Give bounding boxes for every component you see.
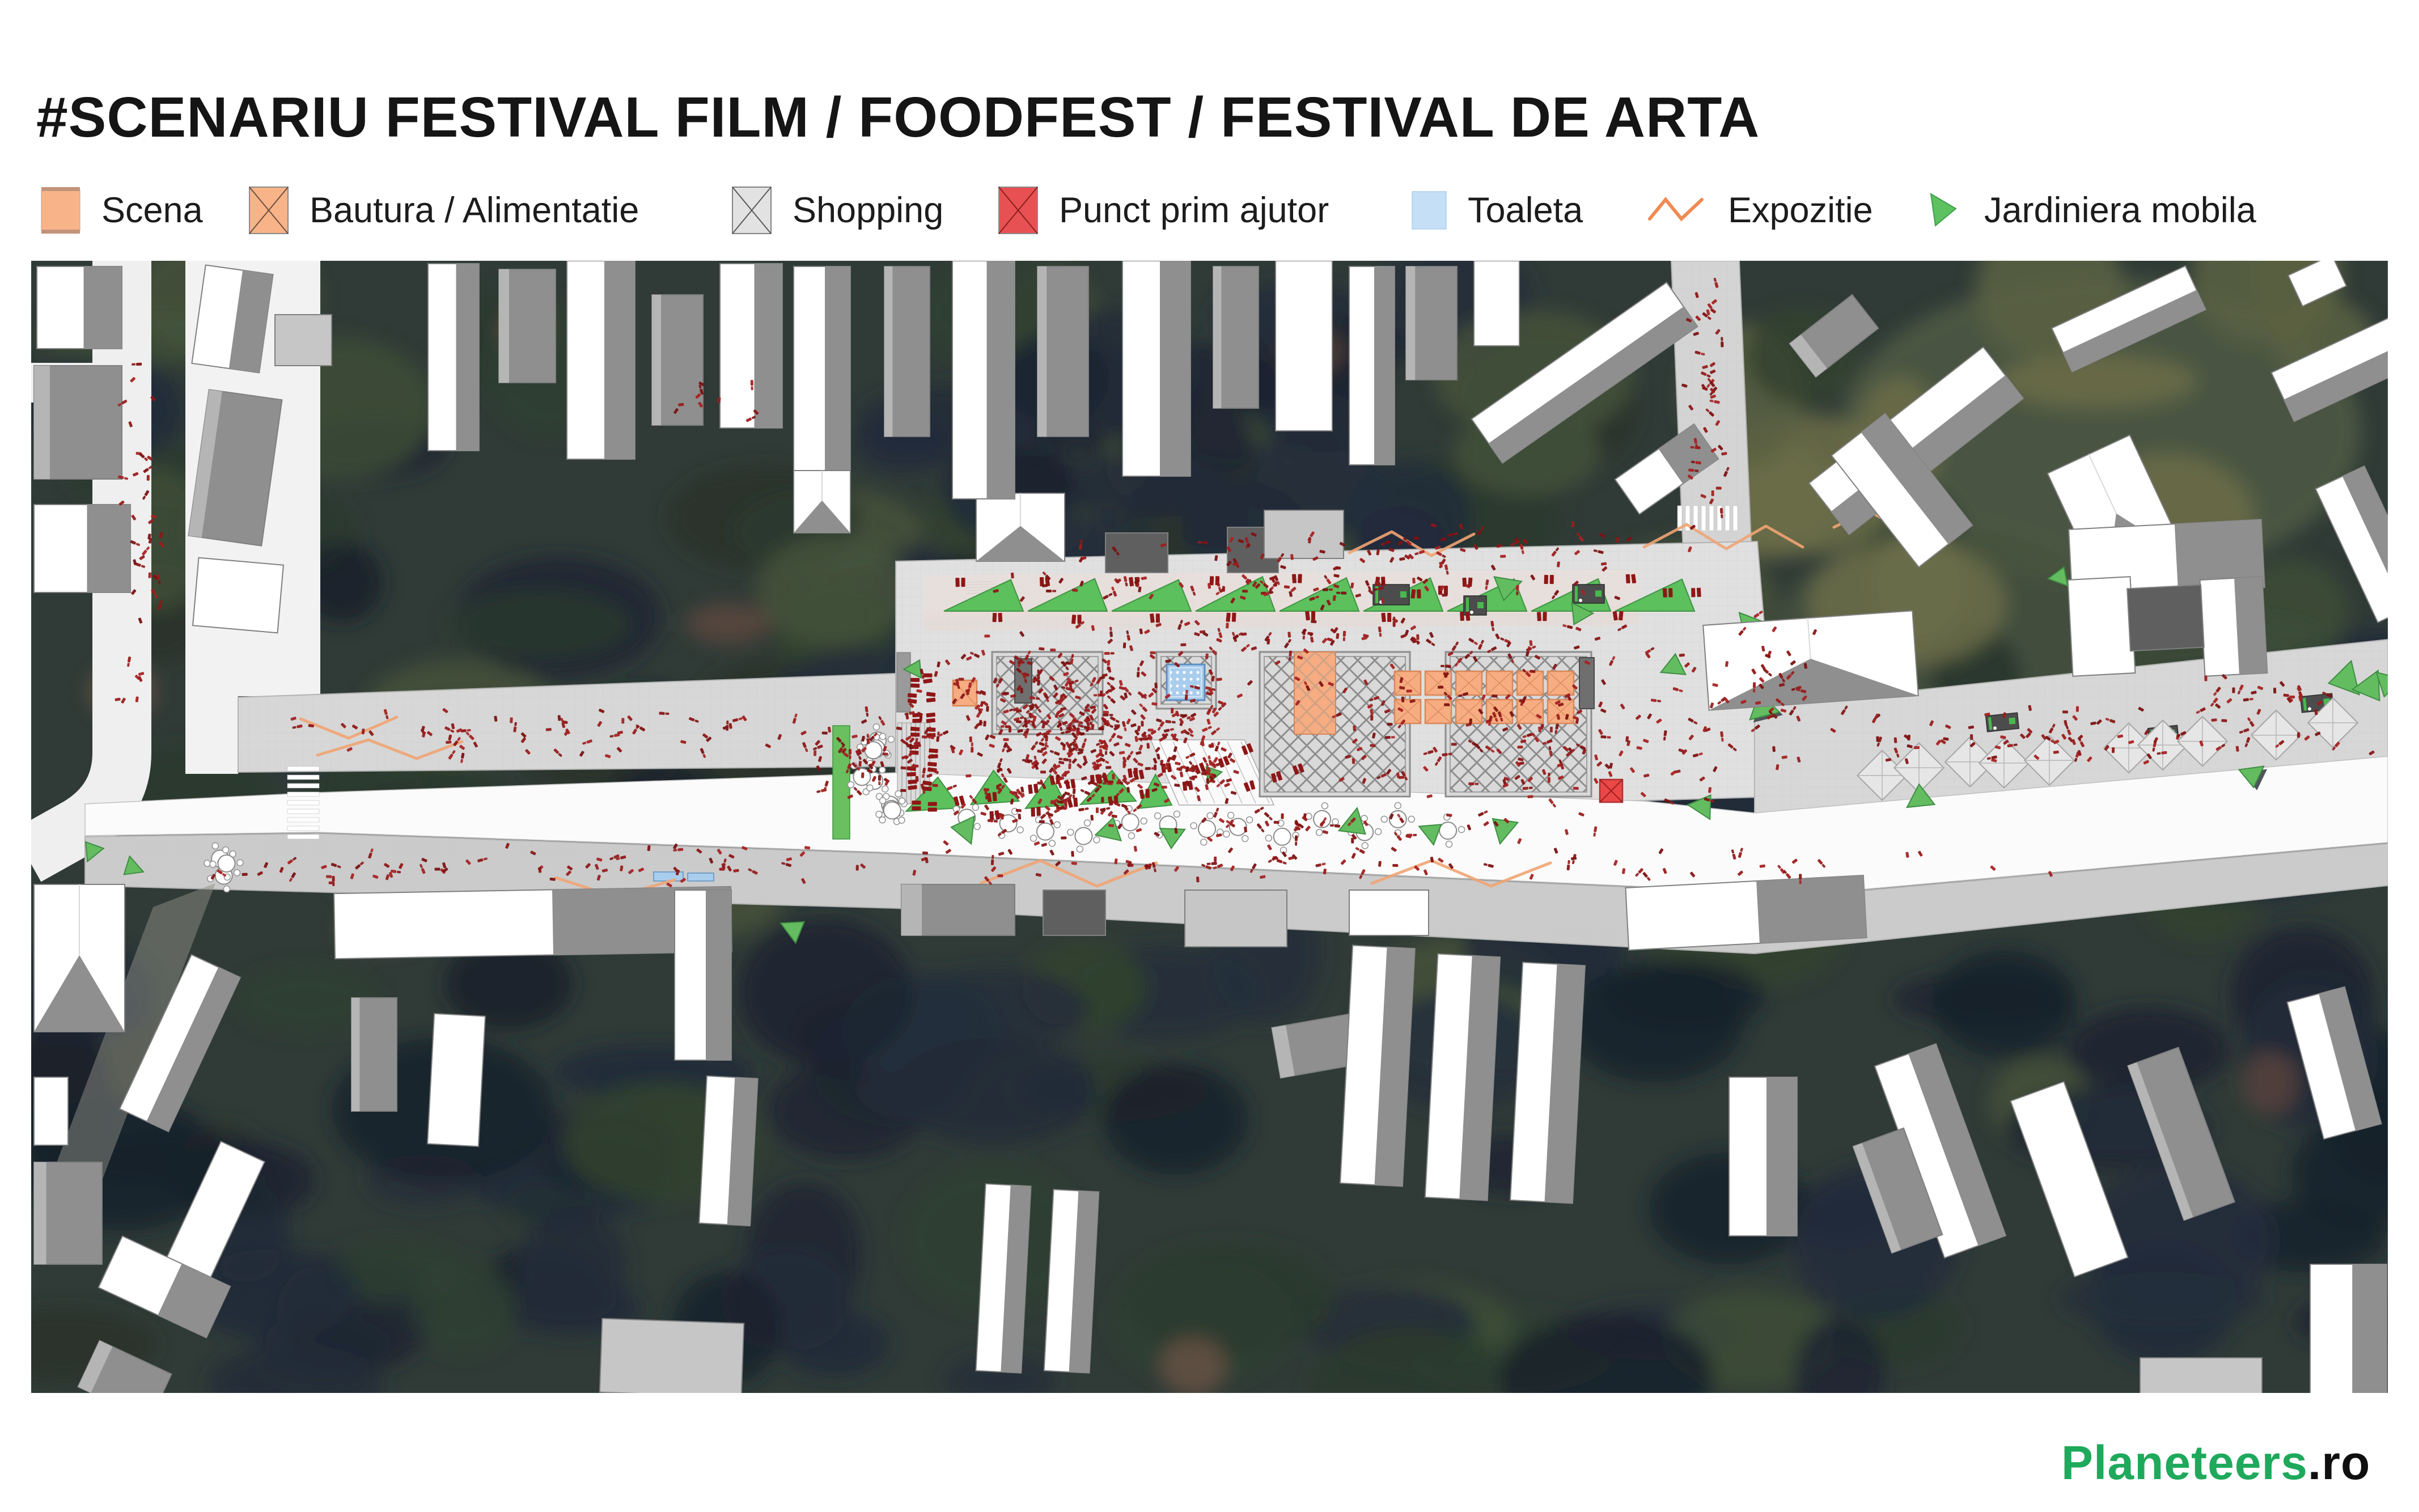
person-icon [1468,782,1478,785]
legend-label: Jardiniera mobila [1984,185,2256,236]
person-icon [1150,651,1155,654]
legend-label: Shopping [793,185,943,236]
building [499,269,556,383]
person-icon [2221,719,2227,722]
brand-logo: Planeteers.ro [2061,1435,2370,1490]
person-icon [1442,594,1447,597]
person-icon [1039,647,1044,650]
person-icon [1072,588,1078,592]
person-icon [1232,563,1238,566]
person-icon [1180,714,1185,717]
building [1037,266,1088,437]
person-icon [1071,862,1077,865]
stall-bench-icon [1668,588,1673,597]
person-icon [1226,622,1229,628]
person-icon [2299,692,2302,698]
building [34,366,122,479]
legend-item-scena: Scena [40,185,203,236]
building [2140,1358,2262,1393]
person-icon [856,865,859,871]
legend-label: Bautura / Alimentatie [310,185,639,236]
person-icon [1214,857,1217,862]
stall-bench-icon [1543,612,1547,621]
person-icon [621,718,624,723]
person-icon [1274,821,1280,824]
person-icon [1444,703,1450,706]
person-icon [932,784,938,787]
person-icon [1401,697,1405,702]
stage-tower [1015,659,1032,703]
person-icon [861,772,865,778]
person-icon [1003,692,1009,695]
person-icon [1115,725,1120,727]
person-icon [1451,743,1457,746]
person-icon [1287,632,1291,637]
legend-item-toaleta: Toaleta [1411,185,1583,236]
legend-item-bautura-alimentatie: Bautura / Alimentatie [248,185,639,236]
person-icon [1381,598,1384,603]
stall-bench-icon [1071,615,1076,624]
person-icon [329,882,334,884]
building [34,505,130,592]
building [1625,875,1866,950]
person-icon [2232,687,2235,693]
person-icon [678,403,684,406]
building [1276,261,1332,431]
stage-tower [1579,658,1594,709]
building [1703,611,1918,710]
person-icon [822,731,828,734]
building [192,265,273,373]
person-icon [1070,728,1076,731]
building [428,264,479,451]
person-icon [1281,814,1283,819]
person-icon [326,875,332,878]
stall-bench-icon [1232,613,1236,622]
person-icon [900,789,906,792]
person-icon [1469,718,1472,724]
brand-tld: .ro [2308,1436,2370,1489]
legend-item-shopping: Shopping [731,185,943,236]
building [720,264,782,428]
person-icon [1180,643,1186,647]
stall-bench-icon [929,748,938,753]
person-icon [958,677,964,680]
building [901,884,1015,935]
person-icon [1171,708,1174,713]
person-icon [1370,715,1373,721]
person-icon [1071,851,1074,857]
legend-item-jardiniera-mobila: Jardiniera mobila [1923,185,2256,236]
person-icon [1550,727,1553,732]
person-icon [1517,746,1523,748]
person-icon [1679,654,1685,657]
building [1729,1077,1797,1236]
scena-stage-icon [40,186,81,235]
stall-bench-icon [912,801,921,804]
building [675,890,731,1060]
person-icon [1103,713,1113,716]
person-icon [1112,774,1115,780]
person-icon [1353,726,1356,731]
person-icon [1061,836,1066,839]
person-icon [1040,770,1046,773]
legend: Scena Bautura / Alimentatie Shopping Pun… [0,185,2419,236]
food-drink-stall-icon [248,186,289,235]
stall-bench-icon [1460,612,1464,621]
stall-bench-icon [1626,574,1630,583]
person-icon [1799,874,1802,884]
person-icon [435,868,440,871]
stall-bench-icon [1036,807,1041,816]
building [699,1076,757,1226]
person-icon [1573,787,1579,790]
person-icon [647,845,651,851]
building [1122,261,1191,476]
site-plan-map [31,261,2388,1393]
stall-bench-icon [1292,574,1297,583]
person-icon [1090,815,1094,820]
building [2127,585,2204,651]
legend-label: Punct prim ajutor [1059,185,1329,236]
stall-bench-icon [961,578,965,587]
person-icon [546,728,552,731]
person-icon [1196,876,1200,882]
person-icon [2289,696,2295,698]
building [427,1014,485,1146]
building [1340,945,1415,1186]
person-icon [922,852,928,855]
person-icon [1037,670,1040,680]
person-icon [2297,732,2300,738]
person-icon [1123,642,1126,648]
building [351,998,397,1111]
person-icon [1970,734,1973,740]
legend-label: Toaleta [1468,185,1583,236]
stall-bench-icon [1537,612,1541,621]
person-icon [308,724,314,727]
person-icon [1009,727,1011,732]
building [794,471,850,533]
stall-bench-icon [912,806,921,810]
person-icon [1914,746,1920,749]
building [794,266,850,471]
person-icon [148,573,151,578]
stall-bench-icon [910,732,920,736]
person-icon [1206,778,1209,783]
person-icon [965,774,971,778]
legend-label: Scena [101,185,203,236]
stall-bench-icon [910,727,920,731]
building [37,266,122,349]
stall-bench-icon [1298,574,1302,583]
person-icon [1146,743,1150,748]
building [652,295,703,425]
stall-bench-icon [1544,575,1549,584]
stall-bench-icon [928,802,937,806]
person-icon [1352,758,1355,764]
person-icon [878,775,881,785]
person-icon [1096,807,1099,813]
building [976,1184,1031,1373]
building [952,261,1015,499]
person-icon [1894,737,1897,743]
site-plan-svg [31,261,2388,1393]
stall-bench-icon [910,678,920,682]
page-title: #SCENARIU FESTIVAL FILM / FOODFEST / FES… [36,85,1760,150]
stall-bench-icon [1145,789,1150,798]
legend-item-punct-prim-ajutor: Punct prim ajutor [998,185,1329,236]
building [34,1077,68,1145]
person-icon [1311,620,1316,624]
page: #SCENARIU FESTIVAL FILM / FOODFEST / FES… [0,0,2419,1512]
stall-bench-icon [990,811,994,820]
building [1264,510,1344,558]
stall-bench-icon [1550,575,1554,584]
person-icon [1548,773,1550,783]
building [2068,577,2136,676]
person-icon [1907,735,1910,740]
person-icon [1716,487,1722,490]
person-icon [1122,763,1125,768]
person-icon [1527,795,1533,798]
person-icon [916,776,919,782]
stall-bench-icon [1073,798,1078,807]
person-icon [1438,685,1443,688]
stall-bench-icon [1691,588,1695,597]
person-icon [510,717,513,723]
building [34,884,125,1032]
person-icon [1370,744,1375,747]
stall-bench-icon [1311,611,1315,620]
person-icon [814,750,816,756]
person-icon [1446,814,1452,817]
person-icon [1772,746,1776,752]
building [1474,261,1519,346]
building [2200,577,2268,676]
building [1349,890,1429,935]
person-icon [1079,732,1084,735]
stall-bench-icon [1663,588,1667,598]
building [275,315,332,366]
person-icon [1351,838,1354,844]
stall-bench-icon [992,613,997,622]
building [1213,266,1259,408]
stall-bench-icon [1078,615,1082,624]
building [1105,533,1168,573]
building [34,1162,102,1264]
building [1510,962,1585,1203]
person-icon [1105,766,1111,769]
person-icon [1138,738,1149,740]
person-icon [1101,797,1104,803]
stall-bench-icon [1031,807,1035,816]
person-icon [1616,537,1620,543]
person-icon [1500,555,1506,558]
person-icon [997,874,1003,877]
person-icon [1162,786,1167,789]
person-icon [979,720,982,726]
kiosk-icon [1573,585,1604,603]
building [1349,266,1395,465]
person-icon [1103,711,1109,714]
legend-label: Expozitie [1728,185,1873,236]
toilet-icon [1411,186,1447,235]
kiosk-icon [1986,713,2019,732]
stall-bench-icon [1387,613,1391,622]
person-icon [1148,729,1154,731]
person-icon [538,867,541,873]
expo-zigzag-icon [1645,186,1708,235]
person-icon [719,868,725,871]
planter-triangle-icon [1923,186,1964,235]
legend-item-expozitie: Expozitie [1645,185,1873,236]
stall-bench-icon [928,808,937,812]
person-icon [1011,573,1014,578]
stall-bench-icon [993,792,997,801]
person-icon [1538,726,1541,732]
building [1406,266,1457,380]
person-icon [147,475,150,481]
person-icon [1141,721,1143,726]
building [193,558,283,633]
person-icon [1046,590,1056,592]
person-icon [1625,736,1629,742]
person-icon [1530,670,1535,673]
person-icon [1020,688,1023,693]
person-icon [1876,736,1879,742]
person-icon [900,766,906,770]
person-icon [242,873,248,876]
shopping-stall-icon [731,186,772,235]
stall-bench-icon [998,613,1002,622]
brand-name: Planeteers [2061,1436,2308,1489]
stall-bench-icon [908,693,917,698]
person-icon [1392,864,1398,867]
person-icon [1242,590,1248,592]
person-icon [2062,710,2068,713]
person-icon [983,721,986,726]
stall-bench-icon [908,780,917,784]
building [2310,1264,2387,1393]
person-icon [858,761,862,766]
first-aid-icon [998,186,1039,235]
building [1044,1189,1099,1373]
person-icon [1387,723,1392,726]
person-icon [1108,781,1113,783]
stall-bench-icon [1417,589,1421,598]
stall-bench-icon [1156,613,1160,622]
person-icon [1128,864,1133,867]
person-icon [1711,490,1714,496]
person-icon [984,634,990,637]
building [884,266,930,437]
person-icon [1412,578,1416,583]
building [1425,954,1500,1200]
stall-bench-icon [906,772,916,777]
person-icon [1413,536,1419,540]
person-icon [1104,652,1115,655]
toaleta-block [688,873,714,881]
person-icon [2273,688,2276,693]
person-icon [849,749,851,759]
person-icon [2112,747,2115,753]
person-icon [1098,727,1104,731]
person-icon [1241,633,1247,636]
building [600,1319,744,1393]
person-icon [2204,675,2207,681]
building [334,887,732,959]
building [567,261,635,459]
person-icon [971,742,973,752]
stall-bench-icon [1697,588,1701,597]
person-icon [1050,649,1056,651]
person-icon [1018,814,1021,819]
building [976,493,1065,561]
person-icon [1016,809,1022,812]
building [1185,890,1287,947]
person-icon [969,736,972,742]
person-icon [2076,706,2079,712]
person-icon [1407,689,1412,692]
person-icon [1492,694,1497,697]
stall-bench-icon [955,578,960,587]
stall-bench-icon [923,674,933,677]
person-icon [1003,738,1009,741]
person-icon [986,706,989,711]
stall-bench-icon [1134,768,1138,777]
building [1043,890,1105,935]
stall-bench-icon [910,683,920,688]
person-icon [1084,709,1090,712]
person-icon [1039,820,1045,823]
person-icon [1154,683,1158,688]
stall-bench-icon [1444,586,1448,595]
